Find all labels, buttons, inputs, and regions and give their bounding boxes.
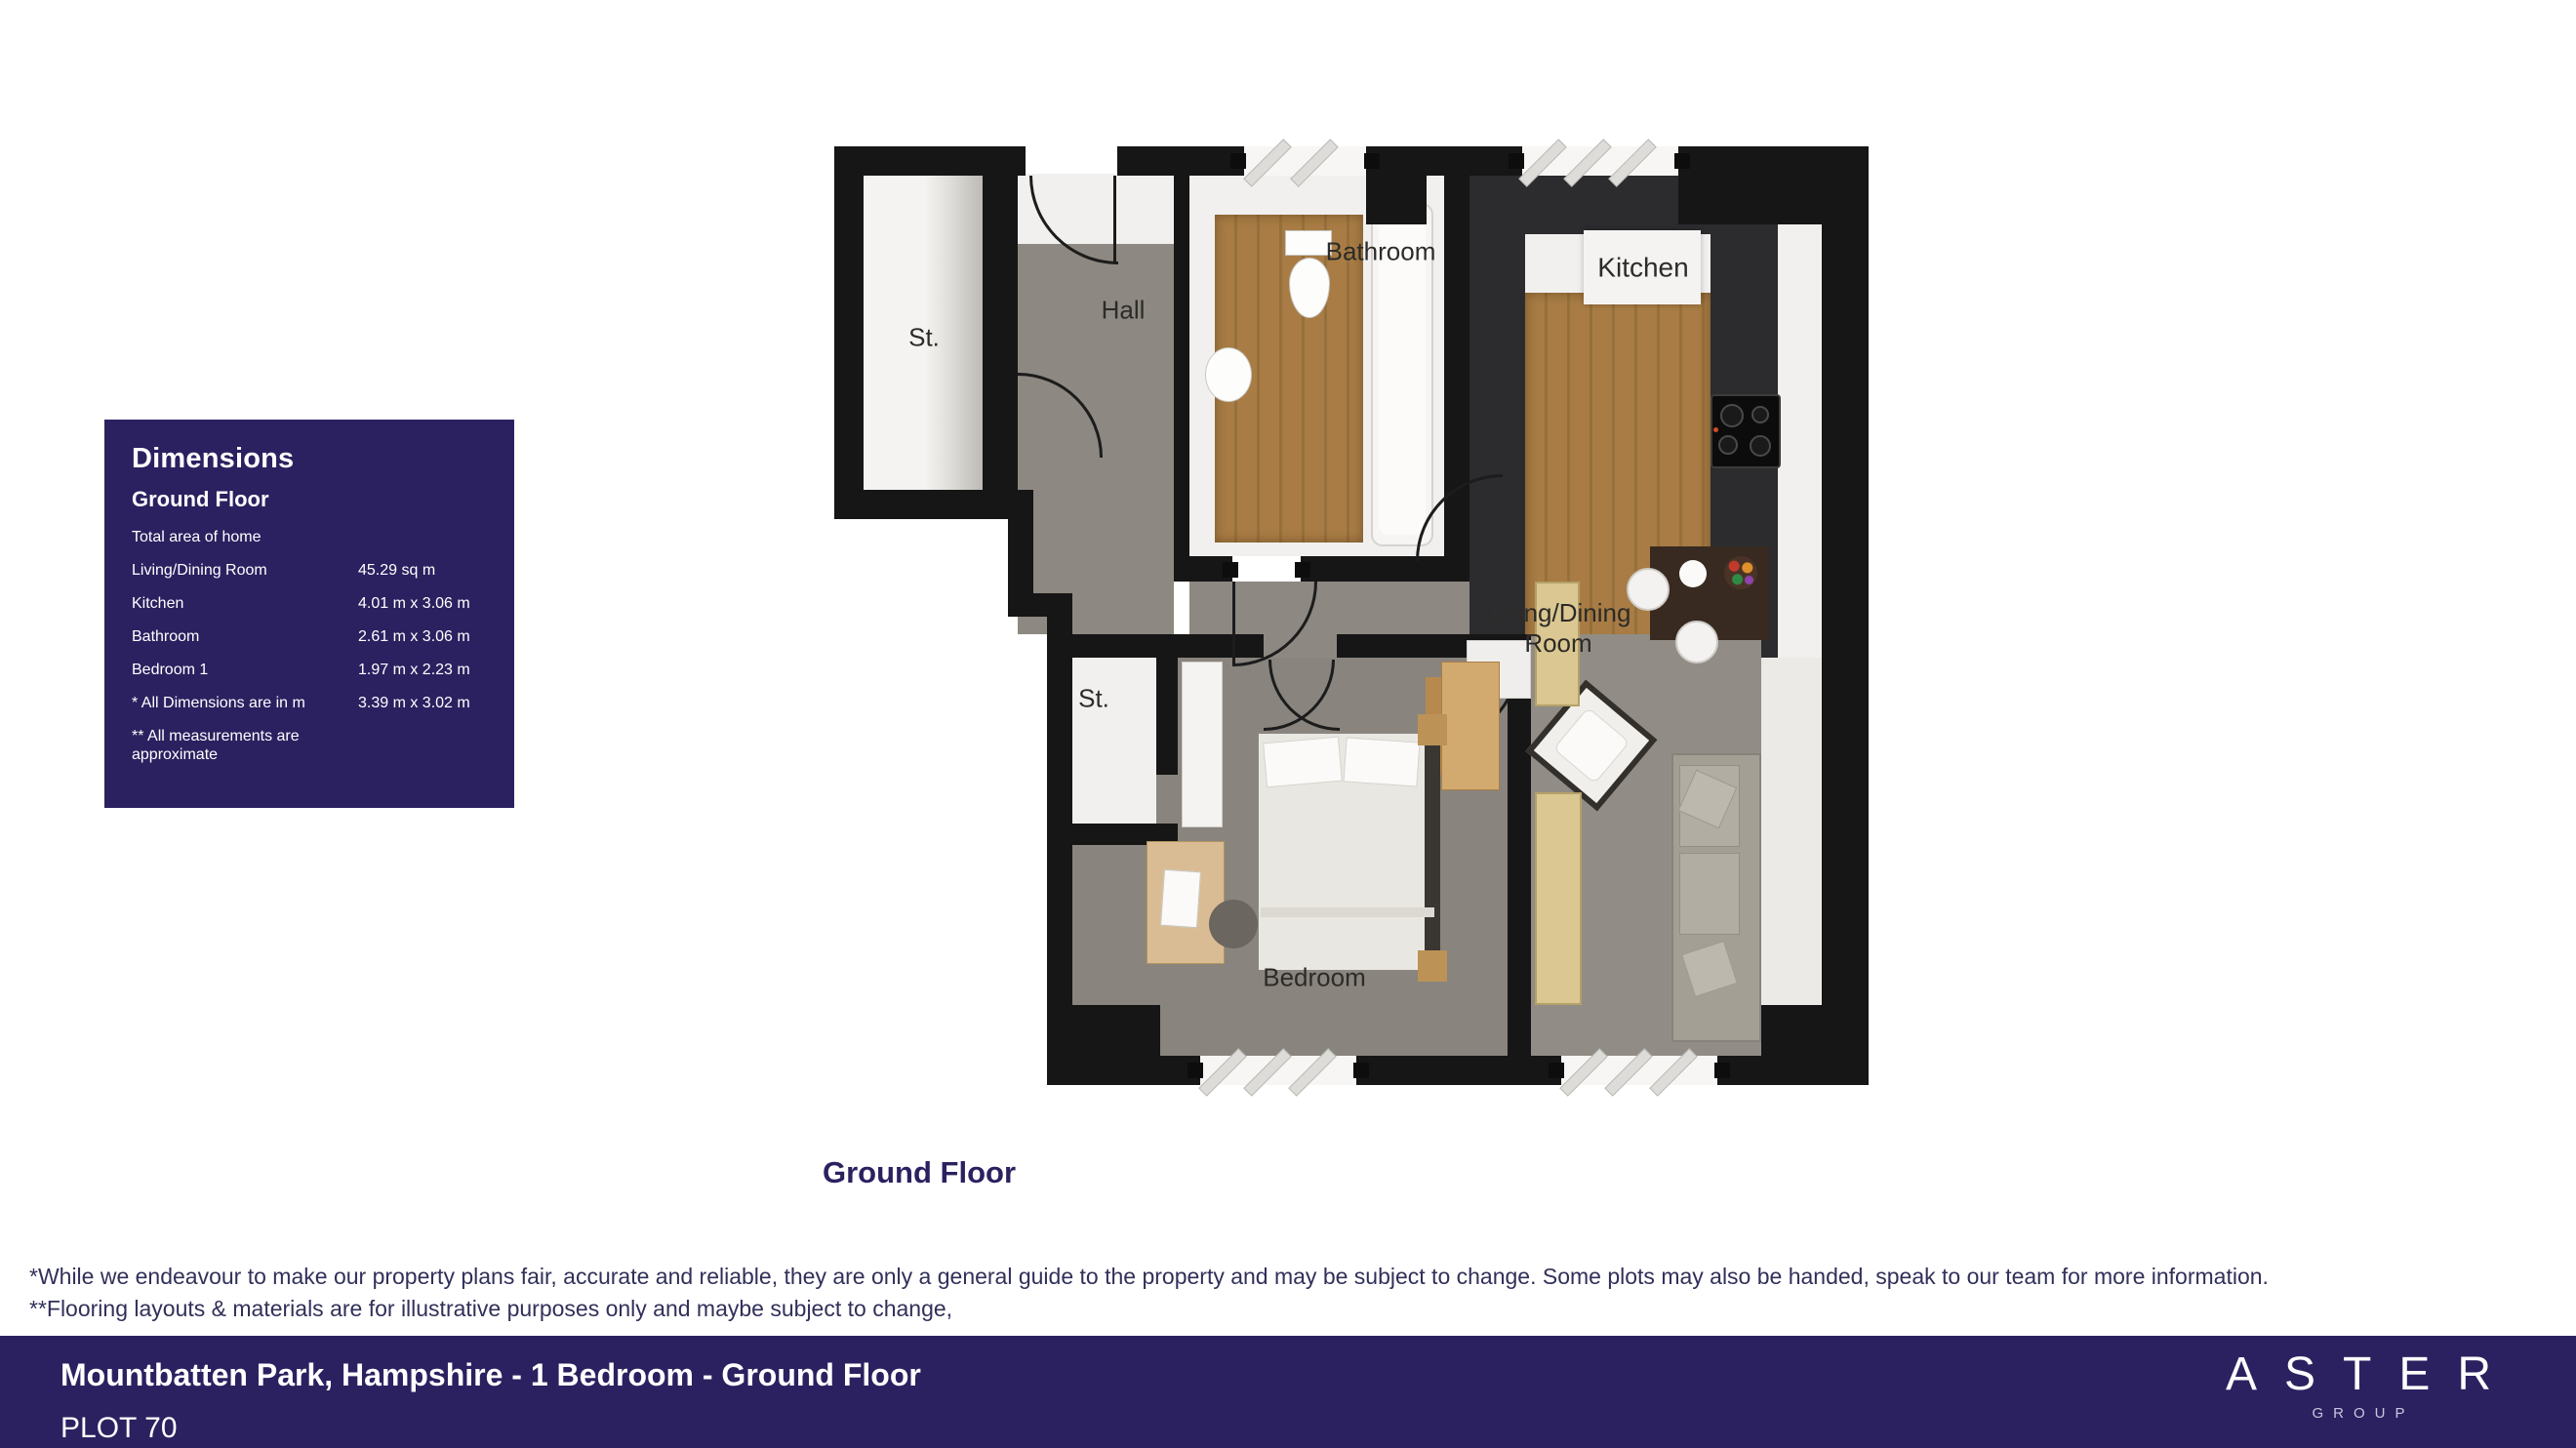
room-label-storage-bottom: St.: [1078, 684, 1109, 714]
dimension-label: * All Dimensions are in m: [132, 694, 358, 712]
living-floor-edge: [1761, 658, 1822, 1056]
hob: [1711, 394, 1781, 468]
outer-wall: [1822, 146, 1869, 1085]
dimension-value: 4.01 m x 3.06 m: [358, 594, 487, 613]
desk-chair: [1209, 900, 1258, 948]
hob-indicator-light: [1713, 427, 1718, 432]
hob-burner: [1718, 435, 1738, 455]
dimension-value: 45.29 sq m: [358, 561, 487, 580]
dimension-label: Living/Dining Room: [132, 561, 358, 580]
hob-burner: [1751, 406, 1769, 423]
kitchen-cabinets-left: [1469, 205, 1525, 640]
wall-stud: [1295, 562, 1310, 578]
wall-stud: [1223, 562, 1238, 578]
room-label-living-dining: Living/Dining Room: [1486, 598, 1631, 659]
desk-laptop: [1160, 869, 1201, 929]
dimension-row: Living/Dining Room 45.29 sq m: [132, 561, 487, 580]
plan-caption: Ground Floor: [823, 1155, 1016, 1190]
disclaimer-line1: *While we endeavour to make our property…: [29, 1261, 2547, 1293]
dimension-row: Bedroom 1 1.97 m x 2.23 m: [132, 661, 487, 679]
wall-stud: [1364, 153, 1380, 169]
room-label-hall: Hall: [1102, 296, 1146, 326]
disclaimer: *While we endeavour to make our property…: [29, 1261, 2547, 1325]
wall-stud: [1714, 1063, 1730, 1078]
dimension-row: Total area of home: [132, 528, 487, 546]
storage-bottom-floor: [1072, 658, 1156, 824]
outer-wall: [1047, 1005, 1160, 1085]
dimension-row: Kitchen 4.01 m x 3.06 m: [132, 594, 487, 613]
dimensions-subtitle: Ground Floor: [132, 487, 487, 512]
room-label-bedroom: Bedroom: [1263, 963, 1366, 993]
floor-plan: St. Hall Bathroom Kitchen Living/Dining …: [834, 146, 1869, 1085]
nightstand: [1418, 950, 1447, 982]
brand-name: ASTER: [2226, 1347, 2518, 1401]
table-flowers: [1724, 556, 1757, 589]
aster-group-logo: ASTER GROUP: [2217, 1347, 2500, 1423]
dimension-row: ** All measurements are approximate: [132, 727, 487, 764]
wall-stud: [1230, 153, 1246, 169]
dimension-label: ** All measurements are approximate: [132, 727, 358, 764]
outer-wall: [834, 490, 1008, 519]
footer-title: Mountbatten Park, Hampshire - 1 Bedroom …: [60, 1357, 921, 1393]
room-label-bathroom: Bathroom: [1326, 237, 1436, 267]
nightstand: [1418, 714, 1447, 745]
dimension-value: 3.39 m x 3.02 m: [358, 694, 487, 712]
door-leaf: [1232, 582, 1235, 664]
wall-stud: [1549, 1063, 1564, 1078]
basin: [1205, 347, 1252, 402]
dimension-value: 2.61 m x 3.06 m: [358, 627, 487, 646]
dimension-label: Bedroom 1: [132, 661, 358, 679]
wall: [1156, 658, 1178, 775]
outer-wall: [1356, 1056, 1561, 1085]
room-label-storage-top: St.: [908, 323, 940, 353]
bed-pillow: [1263, 737, 1343, 788]
dining-chair: [1675, 621, 1718, 664]
outer-wall: [834, 146, 864, 519]
dimension-row: * All Dimensions are in m 3.39 m x 3.02 …: [132, 694, 487, 712]
disclaimer-line2: **Flooring layouts & materials are for i…: [29, 1293, 2547, 1325]
dimension-value: 1.97 m x 2.23 m: [358, 661, 487, 679]
outer-wall: [1761, 1005, 1869, 1085]
hob-burner: [1720, 404, 1744, 427]
wall-stud: [1353, 1063, 1369, 1078]
dimensions-title: Dimensions: [132, 443, 487, 475]
footer-plot-number: PLOT 70: [60, 1412, 178, 1445]
dining-chair: [1627, 568, 1670, 611]
bed-duvet-fold: [1261, 907, 1434, 917]
brand-subtitle: GROUP: [2312, 1405, 2414, 1422]
dimension-row: Bathroom 2.61 m x 3.06 m: [132, 627, 487, 646]
hob-burner: [1750, 435, 1771, 457]
wall: [983, 146, 1018, 490]
wall-stud: [1187, 1063, 1203, 1078]
bedroom-cabinet: [1441, 662, 1500, 790]
bed-pillow: [1343, 737, 1420, 786]
wall-stud: [1509, 153, 1524, 169]
bed-frame: [1425, 732, 1440, 972]
sofa-cushion: [1679, 853, 1740, 935]
footer-bar: Mountbatten Park, Hampshire - 1 Bedroom …: [0, 1336, 2576, 1448]
outer-wall: [1117, 146, 1244, 176]
shelf-unit: [1535, 792, 1582, 1005]
room-label-living-line2: Room: [1524, 628, 1591, 658]
dimension-value: [358, 528, 487, 546]
dimension-label: Bathroom: [132, 627, 358, 646]
wall: [1174, 174, 1189, 582]
dimension-label: Kitchen: [132, 594, 358, 613]
dimension-label: Total area of home: [132, 528, 358, 546]
dimensions-table: Total area of home Living/Dining Room 45…: [132, 528, 487, 764]
table-jug: [1679, 560, 1707, 587]
dimensions-panel: Dimensions Ground Floor Total area of ho…: [104, 420, 514, 808]
wall-stud: [1674, 153, 1690, 169]
room-label-living-line1: Living/Dining: [1486, 598, 1631, 627]
door-leaf: [1113, 176, 1116, 261]
room-label-kitchen: Kitchen: [1597, 253, 1688, 283]
dimension-value: [358, 727, 487, 764]
wardrobe: [1182, 662, 1223, 827]
